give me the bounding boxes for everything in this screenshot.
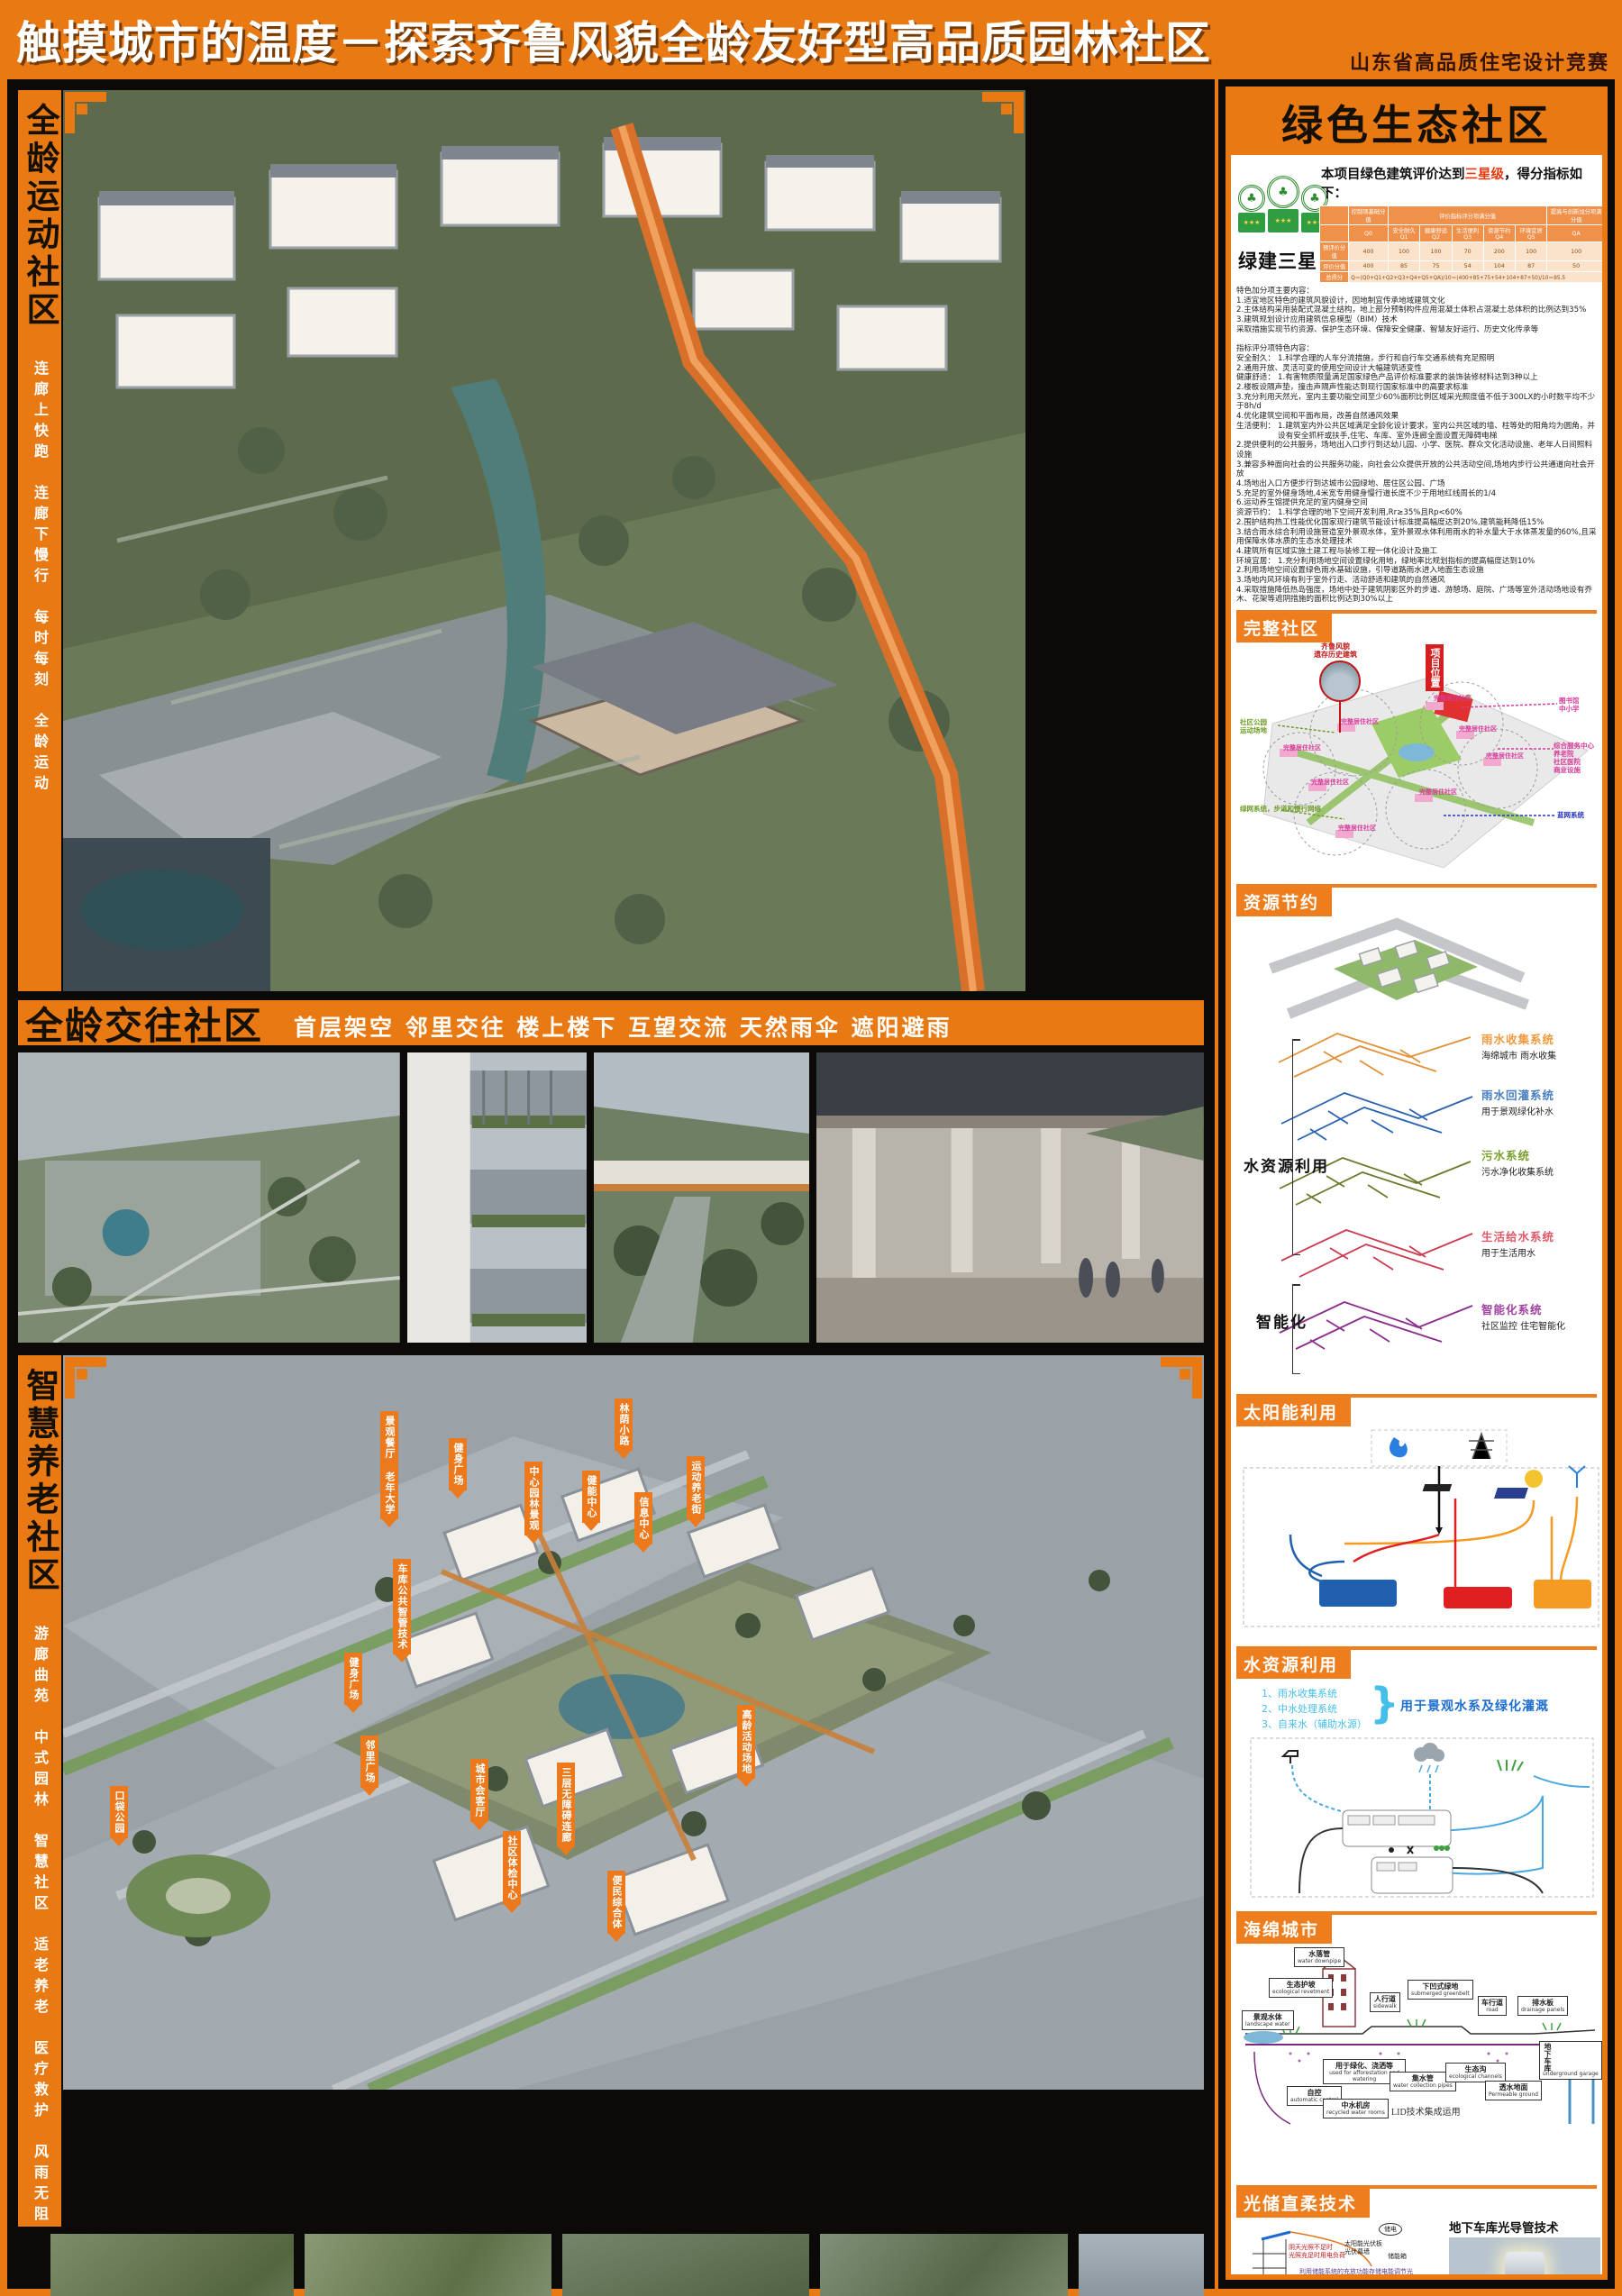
elder-section: 智慧养老社区 游廊曲苑 中式园林 智慧社区 适老养老 医疗救护 风雨无阻 xyxy=(18,1355,1204,2227)
tab-sponge-city: 海绵城市 xyxy=(1236,1915,1332,1944)
sports-community-rendering xyxy=(63,90,1025,991)
text-line: 3.建筑规划设计应用建筑信息模型（BIM）技术 xyxy=(1236,315,1597,325)
plan-label-tag: 健能中心 xyxy=(582,1471,600,1523)
social-photo-arcade xyxy=(816,1052,1204,1343)
text-line: 采取措施实现节约资源、保护生态环境、保障安全健康、智慧友好运行、历史文化传承等 xyxy=(1236,325,1597,335)
brace-icon: } xyxy=(1370,1679,1399,1727)
lightpipe-caption: 地下车库光导管技术 xyxy=(1449,2218,1559,2236)
energy-flow-art xyxy=(1236,1426,1602,1634)
map-label-school: 图书馆中小学 xyxy=(1559,697,1580,713)
poster-header: 触摸城市的温度－探索齐鲁风貌全龄友好型高品质园林社区 山东省高品质住宅设计竞赛 xyxy=(0,0,1622,79)
left-panel: 全龄运动社区 连廊上快跑 连廊下慢行 每时每刻 全龄运动 xyxy=(7,79,1215,2289)
text-line: 资源节约：1.科学合理的地下空间开发利用,Rr≥35%且Rp<60% xyxy=(1236,508,1597,518)
tab-resource-saving: 资源节约 xyxy=(1236,888,1332,916)
plan-label-tag: 城市会客厅 xyxy=(470,1759,488,1822)
lid-label-box: 生态护坡 ecological revetment xyxy=(1269,1978,1333,1998)
text-line: 2.主体结构采用装配式混凝土结构，地上部分预制构件应用混凝土体积占混凝土总体积的… xyxy=(1236,305,1597,315)
city-map-art xyxy=(1236,642,1602,879)
corner-ornament-icon xyxy=(982,92,1024,133)
complete-community-section: 完整社区 xyxy=(1236,610,1597,879)
social-photo-balcony xyxy=(407,1052,587,1343)
solar-section: 太阳能利用 xyxy=(1236,1394,1597,1641)
lvjian-text: 特色加分项主要内容： 1.适宜地区特色的建筑风貌设计，因地制宜传承地域建筑文化 … xyxy=(1236,287,1597,605)
green-panel: 绿色生态社区 ♣★★★ ♣★★★ ♣★★★ 绿建三星 本项目绿色建筑评价达到三星… xyxy=(1218,79,1615,2289)
aerial-masterplan-art xyxy=(63,1355,1204,2090)
feature-thumb xyxy=(1079,2234,1204,2296)
green-panel-body: ♣★★★ ♣★★★ ♣★★★ 绿建三星 本项目绿色建筑评价达到三星级，得分指标如… xyxy=(1231,155,1602,2274)
note-sunny: 光照充足时用电负荷 xyxy=(1289,2251,1345,2260)
text-line: 特色加分项主要内容： xyxy=(1236,287,1597,296)
plan-label-tag: 信息中心 xyxy=(634,1492,652,1544)
community-label: 完整居住社区 xyxy=(1338,824,1376,833)
text-line: 3.充分利用天然光，室内主要功能空间至少60%面积比例区域采光照度值不低于300… xyxy=(1236,393,1597,412)
lid-label-box: 景观水体 landscape water xyxy=(1242,2010,1294,2030)
community-label: 完整居住社区 xyxy=(1283,743,1321,752)
lid-label-box: 排水板 drainage panels xyxy=(1517,1996,1568,2016)
heritage-callout: 齐鲁风貌遗存历史建筑 xyxy=(1314,642,1357,659)
sports-sidebar: 全龄运动社区 连廊上快跑 连廊下慢行 每时每刻 全龄运动 xyxy=(18,90,61,991)
elder-feature-thumbs: 人车分流 中心园林 风雨连廊 急救送达 xyxy=(50,2234,1204,2296)
green-panel-inner: 绿色生态社区 ♣★★★ ♣★★★ ♣★★★ 绿建三星 本项目绿色建筑评价达到三星… xyxy=(1226,87,1608,2280)
community-label: 完整居住社区 xyxy=(1341,717,1379,726)
note-principle: 利用储能系统的充放功能存储电能调节光伏发电系统的功能 xyxy=(1299,2268,1417,2274)
aerial-rendering-art xyxy=(63,90,1025,991)
text-line: 2.楼板设隔声垫，撞击声隔声性能达到现行国家标准中的高要求标准 xyxy=(1236,383,1597,393)
corner-ornament-icon xyxy=(1161,1357,1202,1399)
poster-page: 触摸城市的温度－探索齐鲁风貌全龄友好型高品质园林社区 山东省高品质住宅设计竞赛 … xyxy=(0,0,1622,2296)
text-line: 1.适宜地区特色的建筑风貌设计，因地制宜传承地域建筑文化 xyxy=(1236,296,1597,306)
social-section-tagline: 首层架空 邻里交往 楼上楼下 互望交流 天然雨伞 遮阳避雨 xyxy=(294,1003,952,1043)
rating-statement: 本项目绿色建筑评价达到三星级，得分指标如下： xyxy=(1321,164,1602,202)
plan-label-tag: 林荫小路 xyxy=(615,1399,633,1451)
feature-thumb-image xyxy=(1079,2234,1204,2296)
competition-subtitle: 山东省高品质住宅设计竞赛 xyxy=(1350,47,1609,76)
feature-thumb: 急救送达 xyxy=(820,2234,1067,2296)
social-photo-walkway xyxy=(594,1052,809,1343)
sponge-city-section: 海绵城市 xyxy=(1236,1911,1597,2180)
feature-thumb: 风雨连廊 xyxy=(562,2234,809,2296)
table-row: 预评价分值 400100 10070 200100 100 xyxy=(1320,242,1603,261)
water-source-item: 3、自来水（辅助水源） xyxy=(1262,1717,1367,1732)
map-label-greenway: 绿网系统，步道和慢行网络 xyxy=(1240,805,1321,813)
note-curtain: 光伏幕墙 xyxy=(1344,2247,1370,2256)
feature-thumb-image xyxy=(562,2234,809,2296)
table-formula-row: 总得分 Q＝(Q0+Q1+Q2+Q3+Q4+Q5+QA)/10＝(400+85+… xyxy=(1320,272,1603,283)
social-photo-roof-garden xyxy=(18,1052,400,1343)
elder-section-tagline: 游廊曲苑 中式园林 智慧社区 适老养老 医疗救护 风雨无阻 xyxy=(19,1626,60,2227)
text-line: 指标评分项特色内容： xyxy=(1236,344,1597,354)
feature-thumb-image xyxy=(50,2234,294,2296)
sports-section-tagline: 连廊上快跑 连廊下慢行 每时每刻 全龄运动 xyxy=(19,360,60,796)
heritage-photo-icon xyxy=(1319,661,1361,702)
site-isometric-art xyxy=(1262,915,1532,1021)
text-line: 5.充足的室外健身场地,4米宽专用健身慢行道长度不少于用地红线周长的1/4 xyxy=(1236,489,1597,499)
tab-water-use: 水资源利用 xyxy=(1236,1650,1351,1679)
text-line: 3.场地内风环境有利于室外行走、活动舒适和建筑的自然通风 xyxy=(1236,576,1597,586)
water-use-section: 水资源利用 1、雨水收集系统2、中水处理系统3、自来水（辅助水源） } 用于景观… xyxy=(1236,1646,1597,1906)
green-star-badges: ♣★★★ ♣★★★ ♣★★★ xyxy=(1236,162,1319,232)
community-label: 完整居住社区 xyxy=(1419,788,1457,797)
text-line: 3.结合雨水综合利用设施营造室外景观水体，室外景观水体利用雨水的补水量大于水体蒸… xyxy=(1236,528,1597,547)
social-section-band: 全龄交往社区 首层架空 邻里交往 楼上楼下 互望交流 天然雨伞 遮阳避雨 xyxy=(18,1000,1204,1045)
water-source-item: 2、中水处理系统 xyxy=(1262,1701,1367,1717)
lid-label-box: 中水机房 recycled water rooms xyxy=(1323,2099,1389,2118)
lid-label-box: 水落管 water downpipe xyxy=(1294,1947,1344,1967)
plan-label-tag: 健身广场 xyxy=(449,1438,467,1490)
note-battery: 储能箱 xyxy=(1388,2252,1407,2261)
text-line: 安全耐久：1.科学合理的人车分流措施，步行和自行车交通系统有充足照明 xyxy=(1236,354,1597,364)
pipe-system-label: 智能化系统 社区监控 住宅智能化 xyxy=(1481,1300,1602,1332)
lid-label-box: 下凹式绿地 submerged greenbelt xyxy=(1408,1980,1473,2000)
plan-label-tag: 景观餐厅 老年大学 xyxy=(380,1411,398,1519)
sports-section-title: 全龄运动社区 xyxy=(18,103,61,330)
text-line: 环境宜居：1.充分利用场地空间设置绿化用地，绿地率比规划指标的提高幅度达到10% xyxy=(1236,557,1597,567)
elder-section-title: 智慧养老社区 xyxy=(18,1368,61,1595)
complete-community-map: 齐鲁风貌遗存历史建筑 项目位置 完整居住社区完整居住社区完整居住社区完整居住社区… xyxy=(1236,642,1602,879)
pipe-system-label: 污水系统 污水净化收集系统 xyxy=(1481,1146,1602,1178)
community-label: 完整居住社区 xyxy=(1459,724,1497,733)
lid-label-box: 透水地面 Permeable ground xyxy=(1485,2081,1542,2100)
score-table: 控制项基础分值 评价指标评分项满分值 提高与创新加分项满分值 Q0 安全耐久Q1… xyxy=(1319,205,1602,283)
tab-complete-community: 完整社区 xyxy=(1236,614,1332,642)
lid-label-box: 人行道 sidewalk xyxy=(1370,1992,1400,2012)
water-group-label: 水资源利用 xyxy=(1244,1153,1329,1176)
corner-ornament-icon xyxy=(65,1357,106,1399)
tab-flex-power: 光储直柔技术 xyxy=(1236,2189,1370,2218)
social-section-title: 全龄交往社区 xyxy=(25,996,263,1051)
flex-power-section: 光储直柔技术 xyxy=(1236,2185,1597,2274)
green-panel-header: 绿色生态社区 xyxy=(1231,90,1602,155)
text-line: 4.建筑所有区域实施土建工程与装修工程一体化设计及施工 xyxy=(1236,547,1597,557)
plan-label-tag: 车库公共智管技术 xyxy=(393,1559,411,1654)
project-location-label: 项目位置 xyxy=(1426,644,1444,691)
tab-solar: 太阳能利用 xyxy=(1236,1398,1351,1426)
water-source-list: 1、雨水收集系统2、中水处理系统3、自来水（辅助水源） xyxy=(1262,1686,1367,1732)
plan-label-tag: 邻里广场 xyxy=(360,1736,378,1788)
lid-label-box: 生态沟 ecological channels xyxy=(1445,2063,1506,2082)
plan-label-tag: 健身广场 xyxy=(344,1653,362,1705)
text-line: 6.运动养生馆提供充足的室内健身空间 xyxy=(1236,498,1597,508)
feature-thumb: 人车分流 xyxy=(50,2234,294,2296)
pipe-system-label: 雨水回灌系统 用于景观绿化补水 xyxy=(1481,1086,1602,1117)
green-intro: ♣★★★ ♣★★★ ♣★★★ 绿建三星 本项目绿色建筑评价达到三星级，得分指标如… xyxy=(1236,162,1597,283)
text-line xyxy=(1236,335,1597,345)
text-line: 2.利用场地空间设置绿色雨水基础设施，引导道路雨水进入地面生态设施 xyxy=(1236,566,1597,576)
text-line: 健康舒适：1.有害物质限量满足国家绿色产品评价标准要求的装饰装修材料达到3种以上 xyxy=(1236,373,1597,383)
plan-label-tag: 便民综合体 xyxy=(607,1871,625,1934)
community-label: 完整居住社区 xyxy=(1486,752,1524,761)
green-badge-icon: ♣★★★ xyxy=(1267,176,1299,232)
elder-community-rendering: 景观餐厅 老年大学健身广场林荫小路中心园林景观健能中心信息中心运动养老街车库公共… xyxy=(63,1355,1204,2090)
community-label: 完整居住社区 xyxy=(1434,694,1472,703)
feature-thumb-image xyxy=(820,2234,1067,2296)
text-line: 4.场地出入口方便步行到达城市公园绿地、居住区公园、广场 xyxy=(1236,479,1597,489)
lid-label-box: 地下车库 underground garage xyxy=(1539,2041,1602,2080)
social-photo-row xyxy=(18,1052,1204,1343)
pipe-system-label: 雨水收集系统 海绵城市 雨水收集 xyxy=(1481,1030,1602,1061)
feature-thumb: 中心园林 xyxy=(305,2234,551,2296)
text-line: 4.优化建筑空间和平面布局，改善自然通风效果 xyxy=(1236,412,1597,422)
bracket xyxy=(1292,1039,1299,1255)
plan-label-tag: 运动养老街 xyxy=(687,1456,705,1519)
plan-label-tag: 社区体检中心 xyxy=(503,1831,521,1905)
community-label: 完整居住社区 xyxy=(1311,778,1349,787)
lvjian-sanxing-label: 绿建三星 xyxy=(1236,241,1319,283)
map-label-park: 社区公园运动场地 xyxy=(1240,718,1267,734)
page-title: 触摸城市的温度－探索齐鲁风貌全龄友好型高品质园林社区 xyxy=(16,7,1080,72)
smart-group-label: 智能化 xyxy=(1256,1309,1308,1332)
table-row: 评价分值 40085 7554 10487 50 xyxy=(1320,261,1603,272)
lid-caption: LID技术集成运用 xyxy=(1391,2104,1461,2118)
rating-highlight: 三星级 xyxy=(1465,168,1505,182)
feature-thumb-image xyxy=(305,2234,551,2296)
water-source-item: 1、雨水收集系统 xyxy=(1262,1686,1367,1701)
plan-label-tag: 中心园林景观 xyxy=(524,1462,542,1535)
sports-section: 全龄运动社区 连廊上快跑 连廊下慢行 每时每刻 全龄运动 xyxy=(18,90,1204,991)
water-use-headline: 用于景观水系及绿化灌溉 xyxy=(1400,1697,1549,1715)
map-label-services: 综合服务中心养老院社区医院商业设施 xyxy=(1554,742,1594,774)
pipe-system-label: 生活给水系统 用于生活用水 xyxy=(1481,1227,1602,1259)
plan-label-tag: 口袋公园 xyxy=(110,1786,128,1838)
green-badge-icon: ♣★★★ xyxy=(1238,185,1265,232)
text-line: 2.通用开放、灵活可变的使用空间设计大幅建筑适变性 xyxy=(1236,364,1597,374)
resource-saving-section: 资源节约 xyxy=(1236,884,1597,1389)
text-line: 2.围护结构热工性能优化国家现行建筑节能设计标准提高幅度达到20%,建筑能耗降低… xyxy=(1236,518,1597,528)
water-flow-art xyxy=(1236,1733,1602,1904)
plan-label-tag: 三层无障碍连廊 xyxy=(557,1763,575,1847)
text-line: 2.提供便利的公共服务，场地出入口步行到达幼儿园、小学、医院、群众文化活动设施、… xyxy=(1236,441,1597,460)
green-title: 绿色生态社区 xyxy=(1281,93,1552,152)
lid-label-box: 车行道 road xyxy=(1478,1996,1507,2016)
text-line: 生活便利：1.建筑室内外公共区域满足全龄化设计要求，室内公共区域的墙、柱等处的阳… xyxy=(1236,422,1597,441)
lightpipe-photo xyxy=(1449,2237,1600,2274)
map-label-bluenet: 蓝网系统 xyxy=(1557,811,1584,819)
text-line: 3.兼容多种面向社会的公共服务功能，向社会公众提供开放的公共活动空间,场地内步行… xyxy=(1236,460,1597,479)
plan-label-tag: 高龄活动场地 xyxy=(737,1705,755,1779)
elder-sidebar: 智慧养老社区 游廊曲苑 中式园林 智慧社区 适老养老 医疗救护 风雨无阻 xyxy=(18,1355,61,2227)
corner-ornament-icon xyxy=(65,92,106,133)
text-line: 4.采取措施降低热岛强度，场地中处于建筑阴影区外的步道、游憩场、庭院、广场等室外… xyxy=(1236,586,1597,605)
